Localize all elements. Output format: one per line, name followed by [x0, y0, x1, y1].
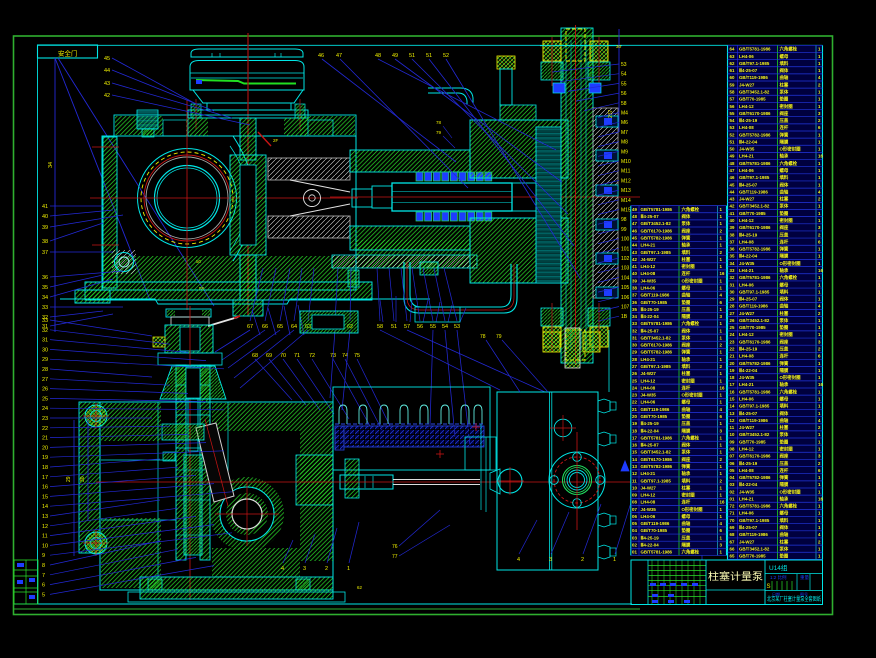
svg-text:Ⅲ4-25-19: Ⅲ4-25-19 — [739, 232, 758, 237]
svg-text:11: 11 — [42, 534, 48, 540]
svg-text:LH4-12: LH4-12 — [739, 104, 754, 109]
svg-text:GB/T5782-1986: GB/T5782-1986 — [641, 236, 673, 241]
svg-text:密封圈: 密封圈 — [682, 377, 696, 384]
svg-text:GB/T5782-1986: GB/T5782-1986 — [739, 475, 771, 480]
svg-text:05: 05 — [730, 468, 735, 473]
svg-text:泵体: 泵体 — [780, 89, 789, 96]
svg-text:42: 42 — [632, 257, 637, 262]
svg-text:39: 39 — [632, 278, 637, 283]
svg-text:70: 70 — [730, 518, 735, 523]
svg-text:106: 106 — [621, 295, 630, 301]
svg-text:隔膜: 隔膜 — [780, 481, 789, 488]
svg-text:垫圈: 垫圈 — [682, 527, 691, 534]
svg-text:J4-W35: J4-W35 — [641, 393, 657, 398]
svg-text:53: 53 — [454, 324, 460, 330]
svg-text:16: 16 — [42, 485, 48, 491]
svg-text:Ⅲ4-25-07: Ⅲ4-25-07 — [739, 297, 758, 302]
svg-text:53: 53 — [730, 125, 735, 130]
svg-text:39: 39 — [730, 225, 735, 230]
svg-text:GB/T5781-1986: GB/T5781-1986 — [739, 504, 771, 509]
svg-text:76: 76 — [392, 544, 398, 550]
svg-text:70: 70 — [280, 353, 286, 359]
svg-text:LH4-12: LH4-12 — [739, 447, 754, 452]
svg-text:54: 54 — [730, 118, 735, 123]
svg-text:42: 42 — [730, 204, 735, 209]
svg-text:J4-W27: J4-W27 — [641, 371, 657, 376]
svg-text:垫圈: 垫圈 — [780, 96, 789, 103]
svg-text:Ⅲ4-25-07: Ⅲ4-25-07 — [739, 182, 758, 187]
svg-text:曲轴: 曲轴 — [780, 74, 789, 81]
svg-text:LH4-12: LH4-12 — [641, 264, 656, 269]
svg-text:12: 12 — [42, 524, 48, 530]
svg-text:23: 23 — [42, 416, 48, 422]
svg-text:9: 9 — [42, 553, 45, 559]
svg-text:6: 6 — [42, 583, 45, 589]
svg-text:20: 20 — [730, 361, 735, 366]
svg-text:GB/T97.1-1985: GB/T97.1-1985 — [739, 518, 770, 523]
svg-text:34: 34 — [632, 314, 637, 319]
svg-text:J4-W35: J4-W35 — [739, 261, 755, 266]
svg-text:02: 02 — [730, 489, 735, 494]
svg-text:60: 60 — [730, 75, 735, 80]
svg-text:44: 44 — [104, 68, 110, 74]
svg-text:35: 35 — [632, 307, 637, 312]
svg-text:O形密封圈: O形密封圈 — [780, 374, 802, 381]
svg-text:O形密封圈: O形密封圈 — [780, 260, 802, 267]
svg-text:14: 14 — [42, 504, 48, 510]
svg-text:06: 06 — [730, 461, 735, 466]
svg-text:05: 05 — [632, 521, 637, 526]
svg-text:密封圈: 密封圈 — [780, 217, 794, 224]
svg-text:轴承: 轴承 — [780, 381, 789, 388]
svg-text:28: 28 — [632, 357, 637, 362]
svg-text:泵体: 泵体 — [780, 545, 789, 552]
svg-text:S: S — [767, 584, 771, 590]
svg-text:阀体: 阀体 — [780, 524, 789, 531]
svg-text:GB/T5781-1986: GB/T5781-1986 — [739, 389, 771, 394]
svg-text:38: 38 — [632, 286, 637, 291]
svg-text:压盖: 压盖 — [780, 346, 789, 353]
svg-text:轴承: 轴承 — [780, 153, 789, 160]
svg-text:螺母: 螺母 — [780, 167, 789, 174]
svg-text:23: 23 — [632, 393, 637, 398]
svg-text:54: 54 — [442, 324, 448, 330]
svg-text:GB/T3452.1-82: GB/T3452.1-82 — [641, 221, 672, 226]
svg-text:66: 66 — [730, 546, 735, 551]
svg-text:24: 24 — [632, 385, 637, 390]
svg-text:轴承: 轴承 — [682, 470, 691, 477]
svg-text:GB/T119-1986: GB/T119-1986 — [739, 418, 768, 423]
svg-text:35: 35 — [730, 254, 735, 259]
svg-text:72: 72 — [309, 353, 315, 359]
svg-text:69: 69 — [730, 525, 735, 530]
svg-text:36: 36 — [632, 300, 637, 305]
svg-text:密封圈: 密封圈 — [780, 331, 794, 338]
svg-text:LH4-08: LH4-08 — [739, 354, 754, 359]
svg-text:Ⅲ4-25-07: Ⅲ4-25-07 — [739, 525, 758, 530]
svg-text:LH4-21: LH4-21 — [739, 382, 754, 387]
svg-text:22: 22 — [632, 400, 637, 405]
svg-text:GB/T3452.1-82: GB/T3452.1-82 — [739, 432, 770, 437]
svg-text:曲轴: 曲轴 — [682, 292, 691, 299]
svg-text:六角螺栓: 六角螺栓 — [780, 388, 798, 395]
svg-text:柱塞: 柱塞 — [682, 484, 691, 491]
svg-text:30: 30 — [730, 289, 735, 294]
svg-text:102: 102 — [621, 256, 630, 262]
svg-text:GB/T70-1985: GB/T70-1985 — [739, 211, 766, 216]
svg-text:螺母: 螺母 — [682, 285, 691, 292]
svg-text:66: 66 — [262, 324, 268, 330]
svg-text:Ⅲ4-22-04: Ⅲ4-22-04 — [641, 543, 660, 548]
svg-text:17: 17 — [42, 475, 48, 481]
svg-text:J4-W27: J4-W27 — [739, 311, 755, 316]
svg-text:GB/T5781-1986: GB/T5781-1986 — [641, 207, 673, 212]
svg-text:28: 28 — [730, 304, 735, 309]
svg-text:49: 49 — [730, 154, 735, 159]
svg-text:连杆: 连杆 — [780, 353, 789, 360]
svg-text:GB/T3452.1-82: GB/T3452.1-82 — [739, 318, 770, 323]
svg-text:LH4-06: LH4-06 — [739, 282, 754, 287]
svg-text:GB/T119-1986: GB/T119-1986 — [739, 189, 768, 194]
svg-text:02: 02 — [632, 543, 637, 548]
svg-text:15: 15 — [42, 494, 48, 500]
svg-text:64: 64 — [291, 324, 297, 330]
svg-text:71: 71 — [294, 353, 300, 359]
svg-text:5: 5 — [42, 592, 45, 598]
svg-text:99: 99 — [621, 227, 627, 233]
svg-text:Ⅲ4-22-04: Ⅲ4-22-04 — [739, 482, 758, 487]
svg-text:78: 78 — [436, 120, 442, 125]
svg-text:连杆: 连杆 — [780, 467, 789, 474]
svg-text:17: 17 — [730, 382, 735, 387]
svg-text:19: 19 — [632, 421, 637, 426]
svg-text:填料: 填料 — [780, 288, 789, 295]
svg-text:36: 36 — [730, 247, 735, 252]
svg-text:34: 34 — [42, 295, 48, 301]
svg-text:34: 34 — [730, 261, 735, 266]
svg-text:19: 19 — [42, 455, 48, 461]
svg-text:71: 71 — [730, 511, 735, 516]
svg-text:GB/T97.1-1985: GB/T97.1-1985 — [739, 175, 770, 180]
svg-text:58: 58 — [621, 101, 627, 107]
svg-text:J4-W27: J4-W27 — [739, 425, 755, 430]
svg-text:18: 18 — [42, 465, 48, 471]
svg-text:56: 56 — [621, 91, 627, 97]
svg-text:六角螺栓: 六角螺栓 — [780, 46, 798, 53]
svg-text:GB/T70-1985: GB/T70-1985 — [739, 554, 766, 559]
svg-text:1: 1 — [347, 566, 350, 572]
svg-text:阀体: 阀体 — [682, 442, 691, 449]
svg-text:10: 10 — [632, 485, 637, 490]
svg-text:弹簧: 弹簧 — [780, 246, 789, 253]
svg-text:12: 12 — [730, 418, 735, 423]
svg-text:泵体: 泵体 — [780, 203, 789, 210]
svg-text:压盖: 压盖 — [780, 460, 789, 467]
svg-text:20: 20 — [632, 414, 637, 419]
svg-text:63: 63 — [730, 54, 735, 59]
svg-text:重量: 重量 — [800, 574, 809, 581]
svg-text:68: 68 — [730, 532, 735, 537]
svg-text:GB/T119-1986: GB/T119-1986 — [641, 407, 670, 412]
svg-text:67: 67 — [247, 324, 253, 330]
svg-text:M7: M7 — [621, 130, 628, 136]
svg-text:M15: M15 — [621, 208, 631, 214]
svg-text:柱塞: 柱塞 — [780, 310, 789, 317]
svg-text:58: 58 — [730, 90, 735, 95]
svg-text:04: 04 — [632, 528, 637, 533]
svg-text:47: 47 — [632, 221, 637, 226]
svg-text:连杆: 连杆 — [682, 270, 691, 277]
svg-text:GB/T70-1985: GB/T70-1985 — [641, 414, 668, 419]
svg-text:M9: M9 — [621, 149, 628, 155]
svg-text:51: 51 — [409, 53, 415, 59]
svg-text:42: 42 — [104, 93, 110, 99]
svg-text:65: 65 — [730, 554, 735, 559]
svg-text:55: 55 — [621, 81, 627, 87]
svg-text:16: 16 — [818, 268, 823, 273]
svg-text:79: 79 — [496, 334, 502, 340]
svg-text:13: 13 — [42, 514, 48, 520]
svg-text:U14组: U14组 — [769, 563, 788, 572]
svg-text:弹簧: 弹簧 — [780, 360, 789, 367]
svg-text:11: 11 — [632, 478, 637, 483]
svg-text:61: 61 — [730, 68, 735, 73]
svg-text:泵体: 泵体 — [682, 449, 691, 456]
svg-text:J4-W35: J4-W35 — [739, 147, 755, 152]
svg-text:54: 54 — [621, 72, 627, 78]
svg-text:Ⅲ4-25-07: Ⅲ4-25-07 — [641, 443, 660, 448]
svg-text:46: 46 — [730, 175, 735, 180]
svg-text:密封圈: 密封圈 — [780, 446, 794, 453]
svg-text:GB/T70-1985: GB/T70-1985 — [739, 439, 766, 444]
svg-text:螺母: 螺母 — [780, 281, 789, 288]
svg-text:65: 65 — [277, 324, 283, 330]
svg-text:7: 7 — [42, 573, 45, 579]
svg-text:M13: M13 — [621, 188, 631, 194]
svg-text:填料: 填料 — [780, 403, 789, 410]
svg-text:16: 16 — [818, 154, 823, 159]
svg-text:30: 30 — [42, 347, 48, 353]
svg-text:GB/T6170-1986: GB/T6170-1986 — [641, 228, 673, 233]
svg-text:12: 12 — [632, 471, 637, 476]
svg-text:21: 21 — [632, 407, 637, 412]
svg-text:阀体: 阀体 — [780, 410, 789, 417]
svg-text:47: 47 — [730, 168, 735, 173]
svg-text:51: 51 — [391, 324, 397, 330]
svg-text:垫圈: 垫圈 — [780, 210, 789, 217]
svg-text:J4-W35: J4-W35 — [641, 278, 657, 283]
svg-text:18: 18 — [730, 375, 735, 380]
svg-text:GB/T3452.1-82: GB/T3452.1-82 — [739, 90, 770, 95]
svg-text:阀座: 阀座 — [780, 453, 789, 460]
svg-text:2: 2 — [325, 566, 328, 572]
svg-text:GB/T6170-1986: GB/T6170-1986 — [739, 111, 771, 116]
svg-text:GB/T119-1986: GB/T119-1986 — [641, 293, 670, 298]
svg-text:45: 45 — [730, 182, 735, 187]
svg-text:46: 46 — [632, 228, 637, 233]
svg-text:48: 48 — [730, 161, 735, 166]
svg-text:阀体: 阀体 — [780, 67, 789, 74]
svg-text:31: 31 — [42, 338, 48, 344]
svg-text:75: 75 — [354, 353, 360, 359]
svg-text:62: 62 — [357, 585, 363, 590]
svg-text:LH4-06: LH4-06 — [641, 400, 656, 405]
svg-text:37: 37 — [730, 239, 735, 244]
svg-text:55: 55 — [730, 111, 735, 116]
svg-text:LH4-21: LH4-21 — [739, 268, 754, 273]
svg-text:弹簧: 弹簧 — [780, 474, 789, 481]
svg-text:Ⅲ4-25-19: Ⅲ4-25-19 — [641, 307, 660, 312]
svg-text:压盖: 压盖 — [682, 306, 691, 313]
svg-text:GB/T5781-1986: GB/T5781-1986 — [641, 550, 673, 555]
svg-text:44: 44 — [632, 243, 637, 248]
svg-text:38: 38 — [42, 239, 48, 245]
svg-text:Ⅲ4-25-07: Ⅲ4-25-07 — [739, 411, 758, 416]
svg-text:隔膜: 隔膜 — [682, 427, 691, 434]
svg-text:Ⅲ4-22-04: Ⅲ4-22-04 — [739, 140, 758, 145]
svg-text:18: 18 — [632, 428, 637, 433]
svg-text:密封圈: 密封圈 — [682, 263, 696, 270]
svg-text:47: 47 — [336, 53, 342, 59]
svg-text:30: 30 — [80, 476, 86, 482]
svg-text:弹簧: 弹簧 — [682, 349, 691, 356]
svg-text:30: 30 — [632, 343, 637, 348]
svg-text:49: 49 — [632, 207, 637, 212]
svg-text:32: 32 — [730, 275, 735, 280]
svg-text:16: 16 — [720, 385, 725, 390]
svg-text:阀体: 阀体 — [780, 296, 789, 303]
svg-text:GB/T70-1985: GB/T70-1985 — [641, 300, 668, 305]
svg-text:LH4-06: LH4-06 — [641, 514, 656, 519]
svg-text:GB/T97.1-1985: GB/T97.1-1985 — [641, 364, 672, 369]
svg-text:41: 41 — [632, 264, 637, 269]
svg-text:GB/T6170-1986: GB/T6170-1986 — [739, 339, 771, 344]
svg-text:J4-W35: J4-W35 — [739, 375, 755, 380]
svg-text:104: 104 — [621, 275, 630, 281]
svg-text:曲轴: 曲轴 — [682, 406, 691, 413]
svg-text:10: 10 — [730, 432, 735, 437]
svg-text:33: 33 — [42, 318, 48, 324]
svg-text:11: 11 — [730, 425, 735, 430]
svg-text:GB/T70-1985: GB/T70-1985 — [739, 325, 766, 330]
svg-text:08: 08 — [730, 447, 735, 452]
svg-text:52: 52 — [443, 53, 449, 59]
svg-text:06: 06 — [632, 514, 637, 519]
svg-text:阀座: 阀座 — [780, 338, 789, 345]
svg-text:GB/T6170-1986: GB/T6170-1986 — [641, 343, 673, 348]
svg-text:36: 36 — [42, 275, 48, 281]
svg-text:49: 49 — [392, 53, 398, 59]
svg-text:26: 26 — [42, 387, 48, 393]
svg-text:27: 27 — [42, 377, 48, 383]
svg-text:GB/T5782-1986: GB/T5782-1986 — [739, 132, 771, 137]
svg-text:77: 77 — [392, 554, 398, 560]
svg-text:阀座: 阀座 — [682, 456, 691, 463]
svg-text:填料: 填料 — [780, 517, 789, 524]
svg-text:LH4-08: LH4-08 — [739, 125, 754, 130]
svg-text:垫圈: 垫圈 — [780, 553, 789, 560]
svg-text:29: 29 — [730, 297, 735, 302]
svg-text:LH4-21: LH4-21 — [739, 497, 754, 502]
svg-text:J4-W35: J4-W35 — [739, 489, 755, 494]
svg-text:阀体: 阀体 — [780, 181, 789, 188]
svg-text:25: 25 — [42, 396, 48, 402]
svg-text:107: 107 — [621, 305, 630, 311]
svg-text:69: 69 — [266, 353, 272, 359]
svg-text:LH4-12: LH4-12 — [641, 493, 656, 498]
svg-text:弹簧: 弹簧 — [780, 131, 789, 138]
svg-text:安全门: 安全门 — [58, 49, 78, 58]
svg-text:Ⅲ4-25-19: Ⅲ4-25-19 — [641, 535, 660, 540]
svg-text:螺母: 螺母 — [682, 513, 691, 520]
svg-text:M11: M11 — [621, 169, 631, 175]
svg-text:72: 72 — [730, 504, 735, 509]
svg-text:垫圈: 垫圈 — [682, 299, 691, 306]
svg-text:GB/T97.1-1985: GB/T97.1-1985 — [641, 250, 672, 255]
svg-text:北京某厂柱塞计量泵全套图纸: 北京某厂柱塞计量泵全套图纸 — [767, 595, 821, 603]
svg-text:M8: M8 — [621, 140, 628, 146]
svg-text:垫圈: 垫圈 — [780, 438, 789, 445]
svg-text:柱塞: 柱塞 — [682, 370, 691, 377]
svg-text:GB/T97.1-1985: GB/T97.1-1985 — [641, 478, 672, 483]
svg-text:阀体: 阀体 — [682, 213, 691, 220]
svg-text:轴承: 轴承 — [682, 242, 691, 249]
svg-text:GB/T5781-1986: GB/T5781-1986 — [739, 47, 771, 52]
svg-text:LH4-12: LH4-12 — [641, 378, 656, 383]
svg-text:24: 24 — [42, 406, 48, 412]
svg-text:LH4-08: LH4-08 — [641, 500, 656, 505]
svg-text:43: 43 — [104, 81, 110, 87]
svg-text:连杆: 连杆 — [780, 238, 789, 245]
svg-text:连杆: 连杆 — [682, 499, 691, 506]
svg-text:LH4-21: LH4-21 — [641, 357, 656, 362]
svg-text:22: 22 — [730, 347, 735, 352]
svg-text:柱塞: 柱塞 — [780, 81, 789, 88]
svg-text:43: 43 — [632, 250, 637, 255]
svg-text:10: 10 — [42, 543, 48, 549]
svg-text:07: 07 — [730, 454, 735, 459]
svg-text:52: 52 — [730, 132, 735, 137]
svg-text:78: 78 — [480, 334, 486, 340]
svg-text:曲轴: 曲轴 — [780, 303, 789, 310]
svg-text:密封圈: 密封圈 — [682, 492, 696, 499]
svg-text:压盖: 压盖 — [682, 420, 691, 427]
svg-text:Ⅲ4-22-04: Ⅲ4-22-04 — [641, 428, 660, 433]
svg-text:O形密封圈: O形密封圈 — [682, 277, 704, 284]
svg-text:21: 21 — [42, 436, 48, 442]
svg-text:13: 13 — [730, 411, 735, 416]
svg-text:填料: 填料 — [780, 60, 789, 67]
svg-text:51: 51 — [730, 140, 735, 145]
svg-text:33: 33 — [632, 321, 637, 326]
svg-text:33: 33 — [730, 268, 735, 273]
svg-text:15: 15 — [730, 397, 735, 402]
svg-text:M14: M14 — [621, 198, 631, 204]
svg-text:21: 21 — [730, 354, 735, 359]
svg-text:16: 16 — [818, 497, 823, 502]
svg-text:07: 07 — [632, 507, 637, 512]
svg-text:01: 01 — [730, 497, 735, 502]
svg-text:45: 45 — [104, 56, 110, 62]
svg-text:M6: M6 — [621, 120, 628, 126]
svg-text:J4-W27: J4-W27 — [641, 257, 657, 262]
svg-text:68: 68 — [252, 353, 258, 359]
svg-text:29: 29 — [42, 357, 48, 363]
svg-text:六角螺栓: 六角螺栓 — [682, 549, 700, 556]
svg-text:柱塞: 柱塞 — [682, 256, 691, 263]
svg-text:40: 40 — [730, 218, 735, 223]
svg-text:04: 04 — [730, 475, 735, 480]
